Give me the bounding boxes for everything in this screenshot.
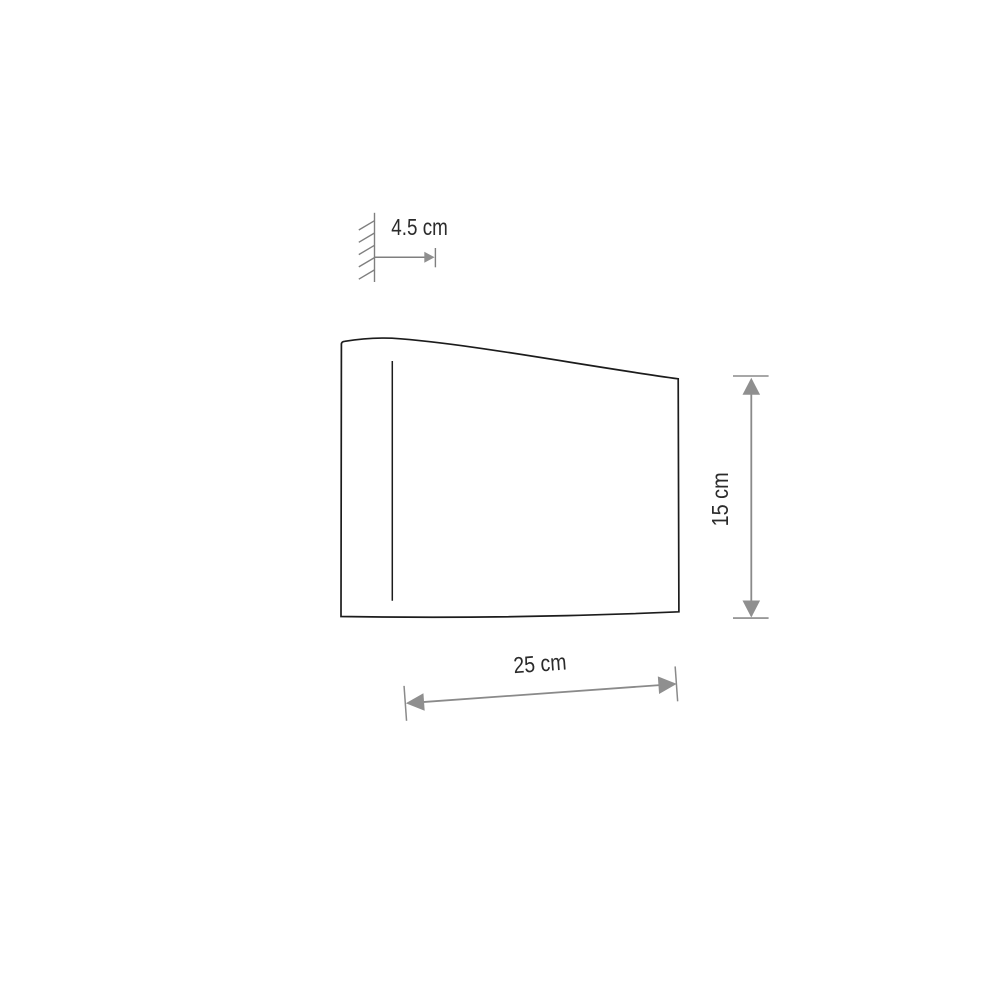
svg-text:25 cm: 25 cm — [512, 649, 567, 679]
svg-text:4.5 cm: 4.5 cm — [391, 214, 448, 240]
svg-text:15 cm: 15 cm — [707, 472, 733, 526]
